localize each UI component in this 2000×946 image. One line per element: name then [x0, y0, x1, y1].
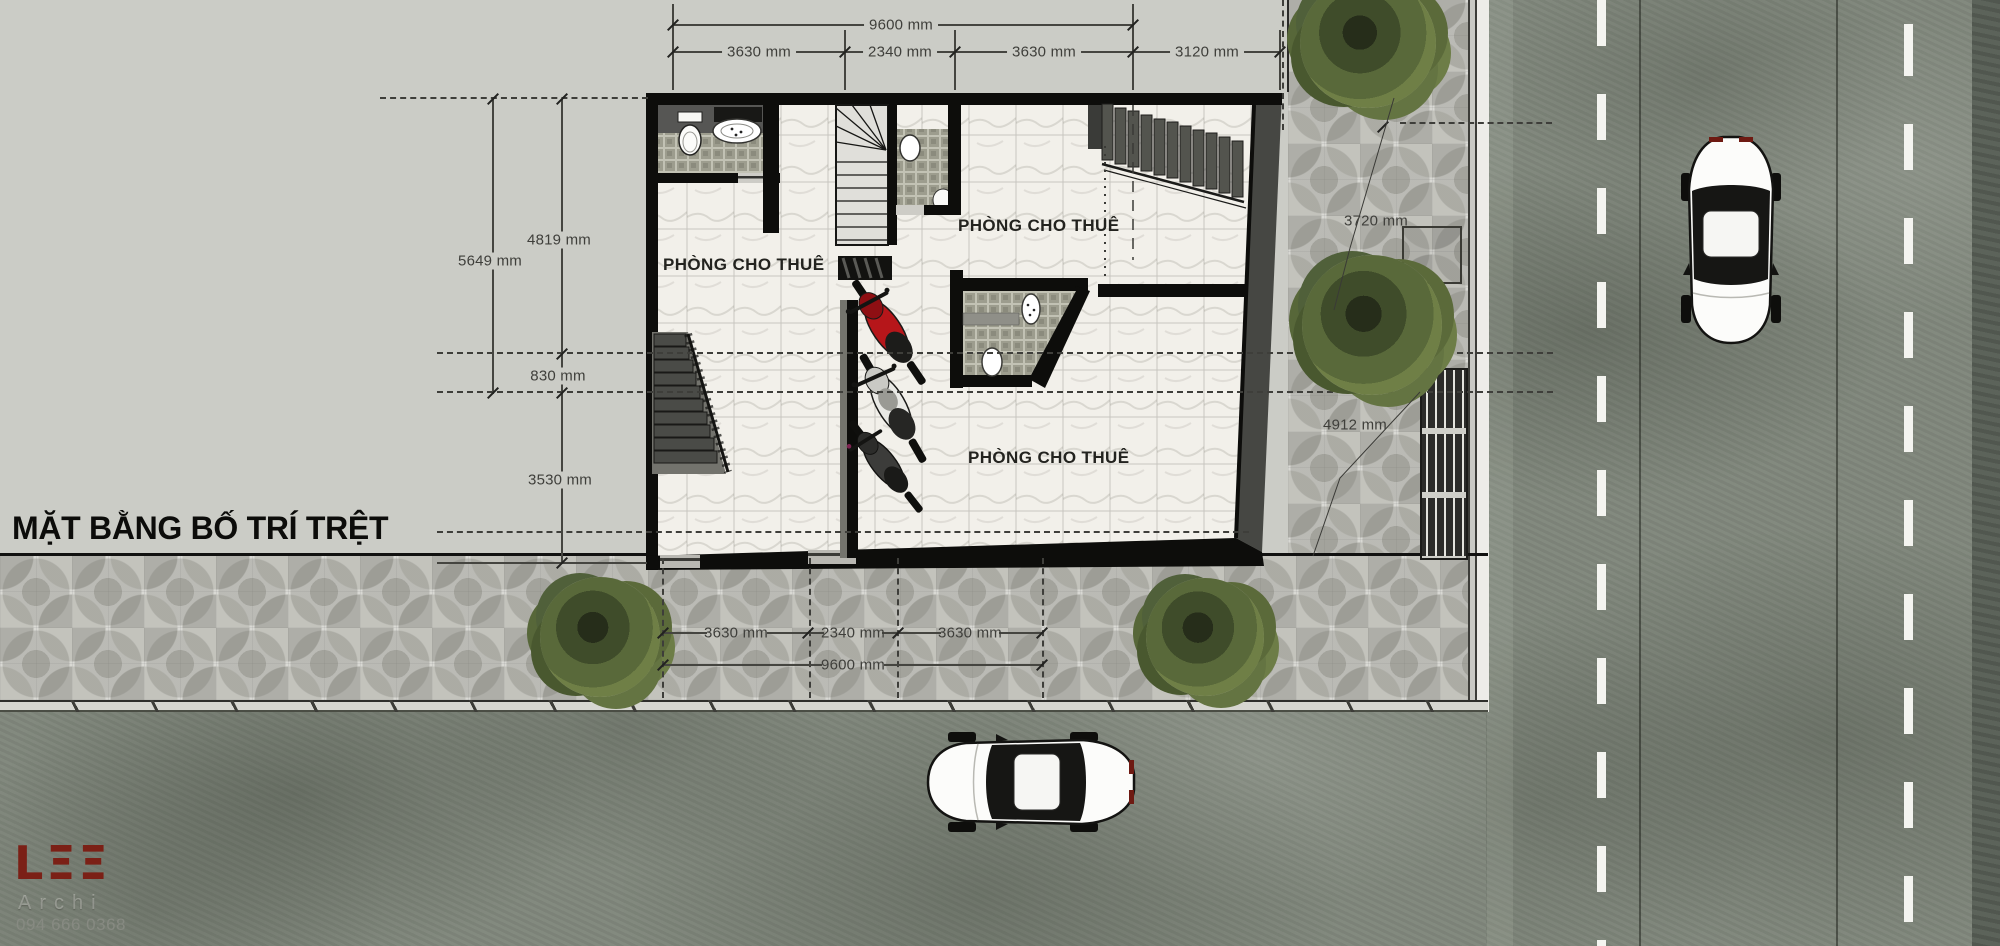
room-divider-wall [1098, 284, 1246, 297]
dim-top-seg2: 2340 mm [863, 44, 937, 61]
dim-right-4912: 4912 mm [1323, 418, 1387, 433]
lane-dash-line [1597, 0, 1606, 946]
dim-bottom-seg2: 2340 mm [821, 626, 885, 641]
dim-ext-line [954, 30, 956, 90]
ground-floor-site-plan: 9600 mm 3630 mm 2340 mm 3630 mm 3120 mm … [0, 0, 2000, 946]
curb-bottom [0, 700, 1488, 712]
basin [900, 135, 920, 161]
dim-top-seg3: 3630 mm [1007, 44, 1081, 61]
sink [713, 119, 761, 143]
room-label-3: PHÒNG CHO THUÊ [968, 448, 1129, 468]
left-wall [646, 93, 658, 570]
lane-edge-line [1836, 0, 1838, 946]
dim-line [561, 99, 563, 564]
dim-line [767, 632, 824, 634]
stairs-main [836, 105, 897, 245]
dim-line [663, 664, 822, 666]
dim-top-seg4: 3120 mm [1170, 44, 1244, 61]
floor-plan-svg [640, 88, 1300, 580]
curb-right [1468, 0, 1489, 712]
shoe-rack [838, 256, 892, 280]
dim-line [999, 632, 1042, 634]
tree [540, 577, 660, 697]
lot-sidewalk-boundary-v [1287, 0, 1289, 92]
partition-wall [763, 105, 779, 233]
dim-left-830: 830 mm [525, 368, 590, 385]
dim-bottom-seg3: 3630 mm [938, 626, 1002, 641]
car-right-road [1679, 129, 1783, 359]
dim-line [884, 664, 1042, 666]
dim-ext-line [672, 4, 674, 90]
car-bottom-road [912, 730, 1142, 834]
dim-top-seg1: 3630 mm [722, 44, 796, 61]
section-cut-line [437, 531, 1249, 533]
dim-line [882, 632, 941, 634]
logo-mark: LΞΞ [14, 840, 110, 886]
road-bottom [0, 710, 1486, 946]
dim-ext-dashed [897, 558, 899, 698]
page-title: MẶT BẰNG BỐ TRÍ TRỆT [12, 510, 388, 547]
dim-top-overall: 9600 mm [864, 17, 938, 34]
tree [1146, 578, 1264, 696]
dim-bottom-overall: 9600 mm [821, 658, 885, 673]
dim-left-3530: 3530 mm [523, 472, 597, 489]
toilet [679, 125, 701, 155]
dim-bottom-seg1: 3630 mm [704, 626, 768, 641]
dim-ext-line [1279, 30, 1281, 90]
toilet-tank [678, 112, 702, 122]
room-label-2: PHÒNG CHO THUÊ [958, 216, 1119, 236]
top-wall [646, 93, 1282, 105]
logo-phone: 094 666 0368 [16, 915, 126, 935]
leader-lines-svg [1290, 80, 1470, 570]
lane-dash-line [1904, 0, 1913, 946]
logo-subtitle: Archi [18, 892, 104, 915]
dim-ext-line [437, 562, 647, 564]
road-gutter [1487, 0, 1513, 946]
bathroom-top-left [658, 105, 780, 183]
dim-ext-line [844, 30, 846, 90]
road-far-edge [1972, 0, 2000, 946]
dim-ext-dashed [380, 97, 648, 99]
dim-left-4819: 4819 mm [522, 232, 596, 249]
dim-left-5649: 5649 mm [453, 253, 527, 270]
room-label-1: PHÒNG CHO THUÊ [663, 255, 824, 275]
dim-ext-dashed [662, 558, 664, 698]
sink [1022, 294, 1040, 324]
lane-edge-line [1639, 0, 1641, 946]
dim-ext-line [1132, 4, 1134, 90]
dim-right-3720: 3720 mm [1344, 214, 1408, 229]
dim-line [663, 632, 707, 634]
dim-line [492, 99, 494, 394]
